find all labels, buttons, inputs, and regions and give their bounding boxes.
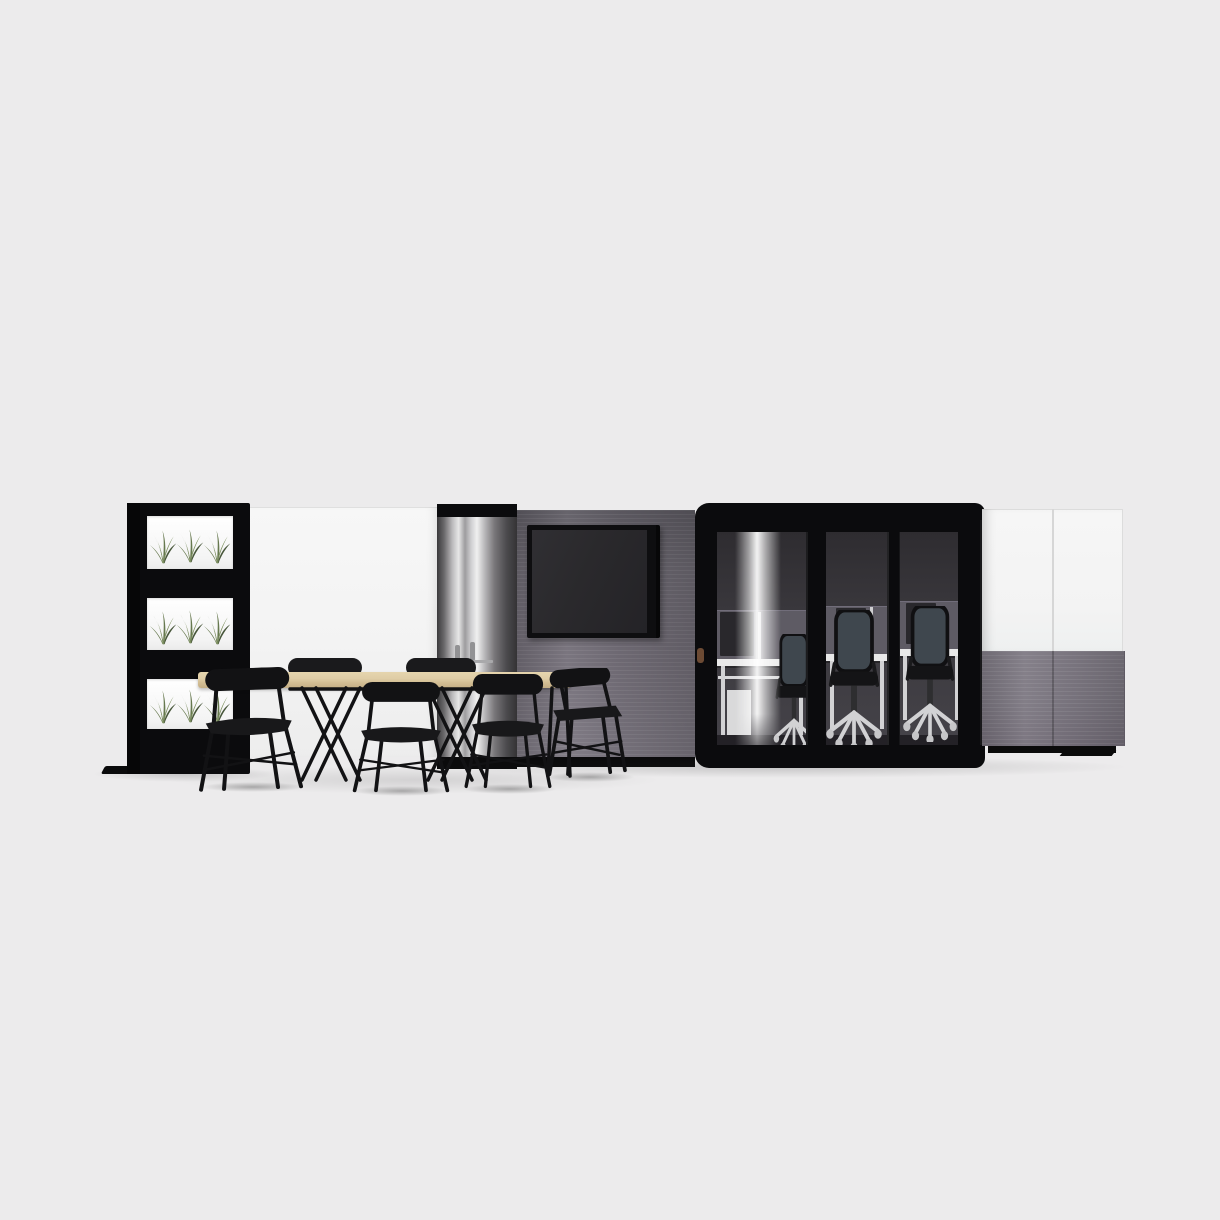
glass-mullion: [806, 532, 826, 747]
glass-door-frame: [695, 520, 717, 752]
studio-scene: [0, 0, 1220, 1220]
bar-stool-chair: [462, 674, 554, 790]
wall-mounted-tv: [527, 525, 660, 638]
pod-bottom-frame: [695, 745, 985, 768]
plants-row: [147, 596, 233, 656]
tv-screen: [532, 530, 647, 633]
bar-stool-chair: [192, 666, 306, 794]
glass-mullion: [887, 532, 900, 747]
desk-leg: [721, 666, 725, 738]
pod-top-frame: [695, 503, 985, 532]
door-handle: [697, 648, 704, 663]
cabinet-lower-seam: [1052, 651, 1054, 746]
cabinet-door-seam: [1052, 509, 1054, 652]
glass-end-frame: [958, 520, 982, 748]
bar-stool-chair: [544, 668, 636, 776]
office-task-chair: [901, 606, 959, 742]
plant-tower-side-face: [127, 503, 140, 774]
glass-light-reflection: [735, 506, 781, 766]
plant-box-window: [147, 516, 233, 569]
plant-box-window: [147, 598, 233, 650]
cabinet-foot-shadow: [1060, 750, 1117, 756]
office-task-chair: [824, 610, 884, 750]
plants-row: [147, 515, 233, 575]
bar-stool-chair: [350, 682, 452, 794]
chrome-panel-top-frame: [437, 504, 517, 517]
